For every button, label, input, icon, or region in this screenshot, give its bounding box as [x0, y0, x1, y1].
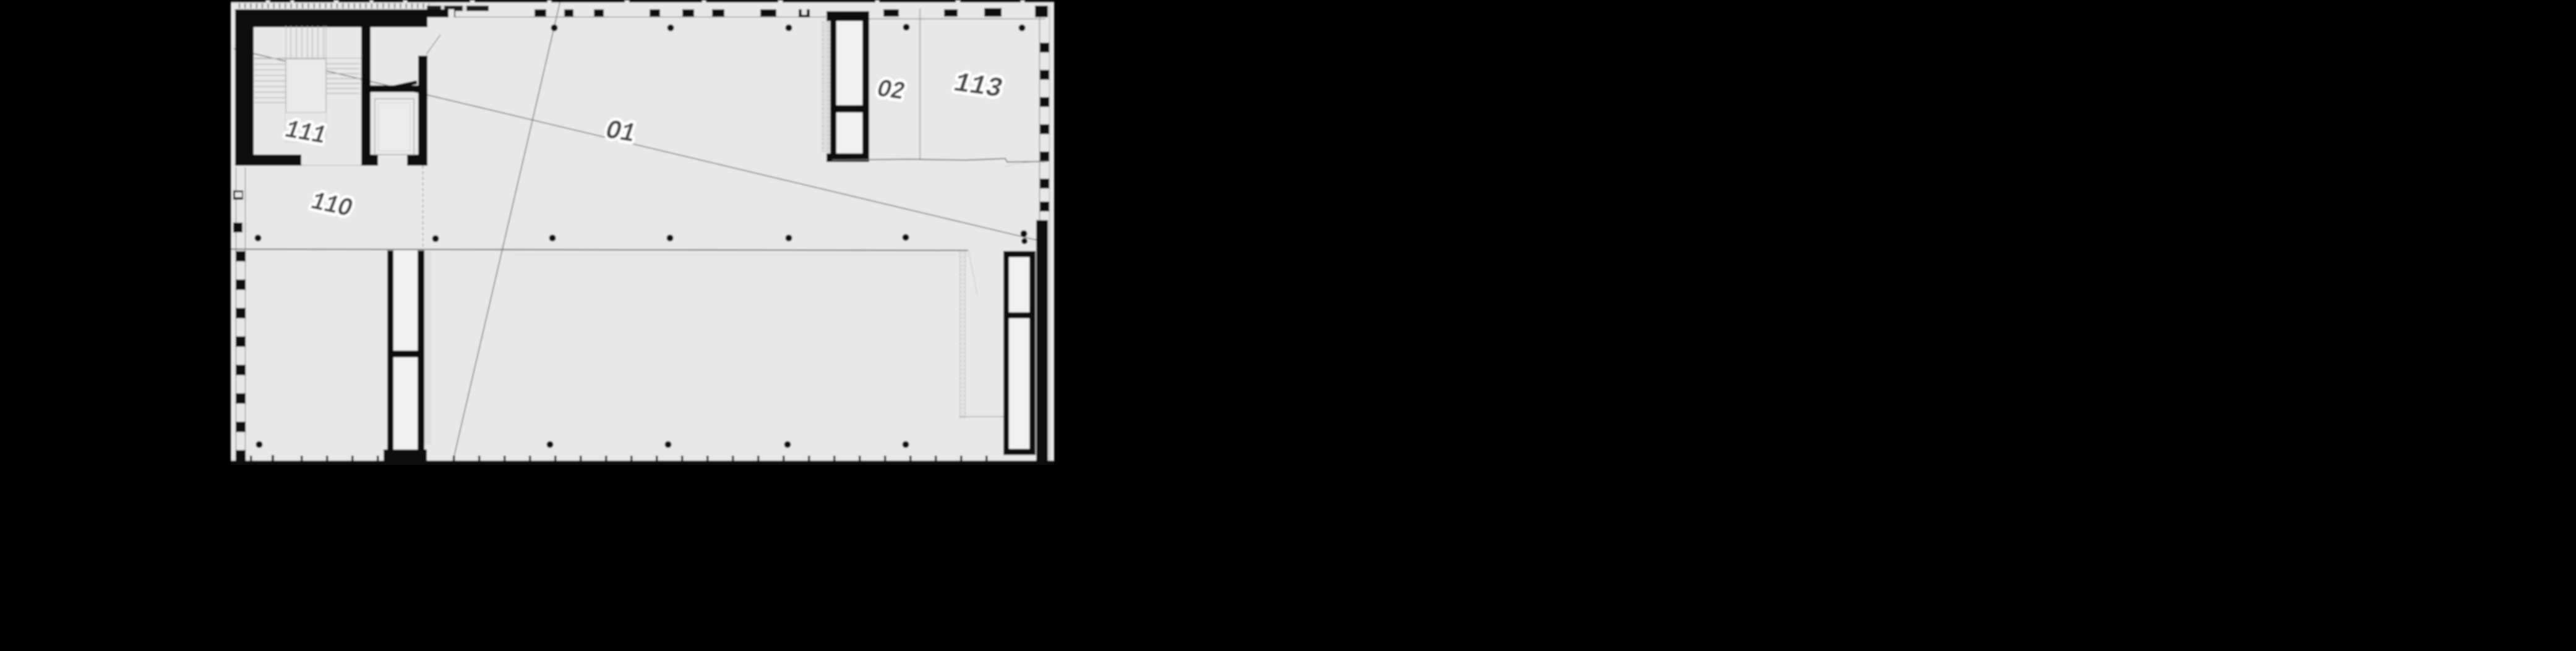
svg-text:O1: O1	[604, 116, 637, 150]
svg-text:113: 113	[952, 67, 1003, 105]
svg-text:O2: O2	[875, 75, 906, 107]
